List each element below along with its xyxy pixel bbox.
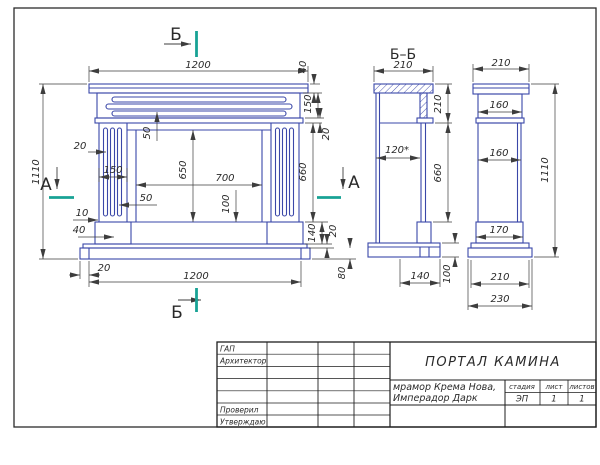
drawing-title: ПОРТАЛ КАМИНА [425, 355, 561, 370]
dim-front-band-h: 20 [321, 128, 332, 141]
dim-section-shelf-h: 210 [433, 94, 444, 113]
dim-front-base-h: 80 [337, 267, 348, 280]
dim-front-hearth: 100 [221, 194, 232, 213]
sheet-value: 1 [551, 395, 556, 405]
material-line-2: Имперадор Дарк [393, 393, 478, 404]
title-block-text: ГАП Архитектор Проверил Утверждаю ПОРТАЛ… [219, 345, 595, 427]
mark-b-top: Б [170, 25, 182, 45]
stage-value: ЭП [515, 395, 529, 405]
dim-front-frieze-h: 150 [303, 94, 314, 113]
dim-front-groove: 50 [142, 127, 153, 140]
dim-section-base-h: 100 [442, 264, 453, 283]
drawing-sheet: 1200 1110 20 150 50 10 40 20 1200 50 650… [0, 0, 600, 465]
dim-side-plinth-w: 170 [489, 225, 508, 236]
dim-side-base-w: 210 [490, 272, 509, 283]
mark-b-bottom: Б [171, 303, 183, 323]
mark-a-left: А [40, 175, 52, 195]
title-block-row-architect: Архитектор [219, 357, 267, 366]
dim-front-column-width: 150 [103, 165, 122, 176]
sheets-value: 1 [579, 395, 584, 405]
dim-front-opening-width: 700 [215, 173, 234, 184]
dim-front-flute-offset: 20 [74, 141, 87, 152]
dim-section-top: 210 [393, 60, 412, 71]
sheet-label: лист [545, 383, 564, 391]
stage-label: стадия [509, 383, 535, 391]
sheets-label: листов [568, 383, 594, 391]
dim-front-shelf-h: 40 [298, 61, 309, 74]
fireplace-portal-drawing: 1200 1110 20 150 50 10 40 20 1200 50 650… [0, 0, 600, 465]
dim-section-depth: 120* [385, 145, 409, 156]
dim-front-top-width: 1200 [185, 60, 210, 71]
section-view-outline [368, 84, 440, 257]
dim-section-leg-h: 660 [433, 163, 444, 182]
dim-side-base-total: 230 [490, 294, 509, 305]
title-block-row-checked: Проверил [220, 405, 259, 414]
mark-a-right: А [348, 173, 360, 193]
title-block-row-approved: Утверждаю [220, 418, 266, 427]
dim-section-plinth-d: 140 [410, 271, 429, 282]
title-block-row-gap: ГАП [220, 345, 235, 354]
material-line-1: мрамор Крема Нова, [393, 382, 496, 393]
dim-side-height: 1110 [540, 157, 551, 182]
dim-front-opening-height: 650 [178, 160, 189, 179]
dim-front-bottom-width: 1200 [183, 271, 208, 282]
dim-side-body-w: 160 [489, 148, 508, 159]
dim-side-frieze-w: 160 [489, 100, 508, 111]
dim-front-leg-h: 660 [298, 162, 309, 181]
dim-side-top: 210 [491, 58, 510, 69]
dim-front-base-strip-h: 20 [328, 225, 339, 238]
dim-front-base-inset: 20 [98, 263, 111, 274]
dim-front-plinth-h: 140 [307, 223, 318, 242]
dim-front-plinth-offset: 40 [73, 225, 86, 236]
dim-front-jamb: 50 [140, 193, 153, 204]
dim-front-flute: 10 [76, 208, 89, 219]
